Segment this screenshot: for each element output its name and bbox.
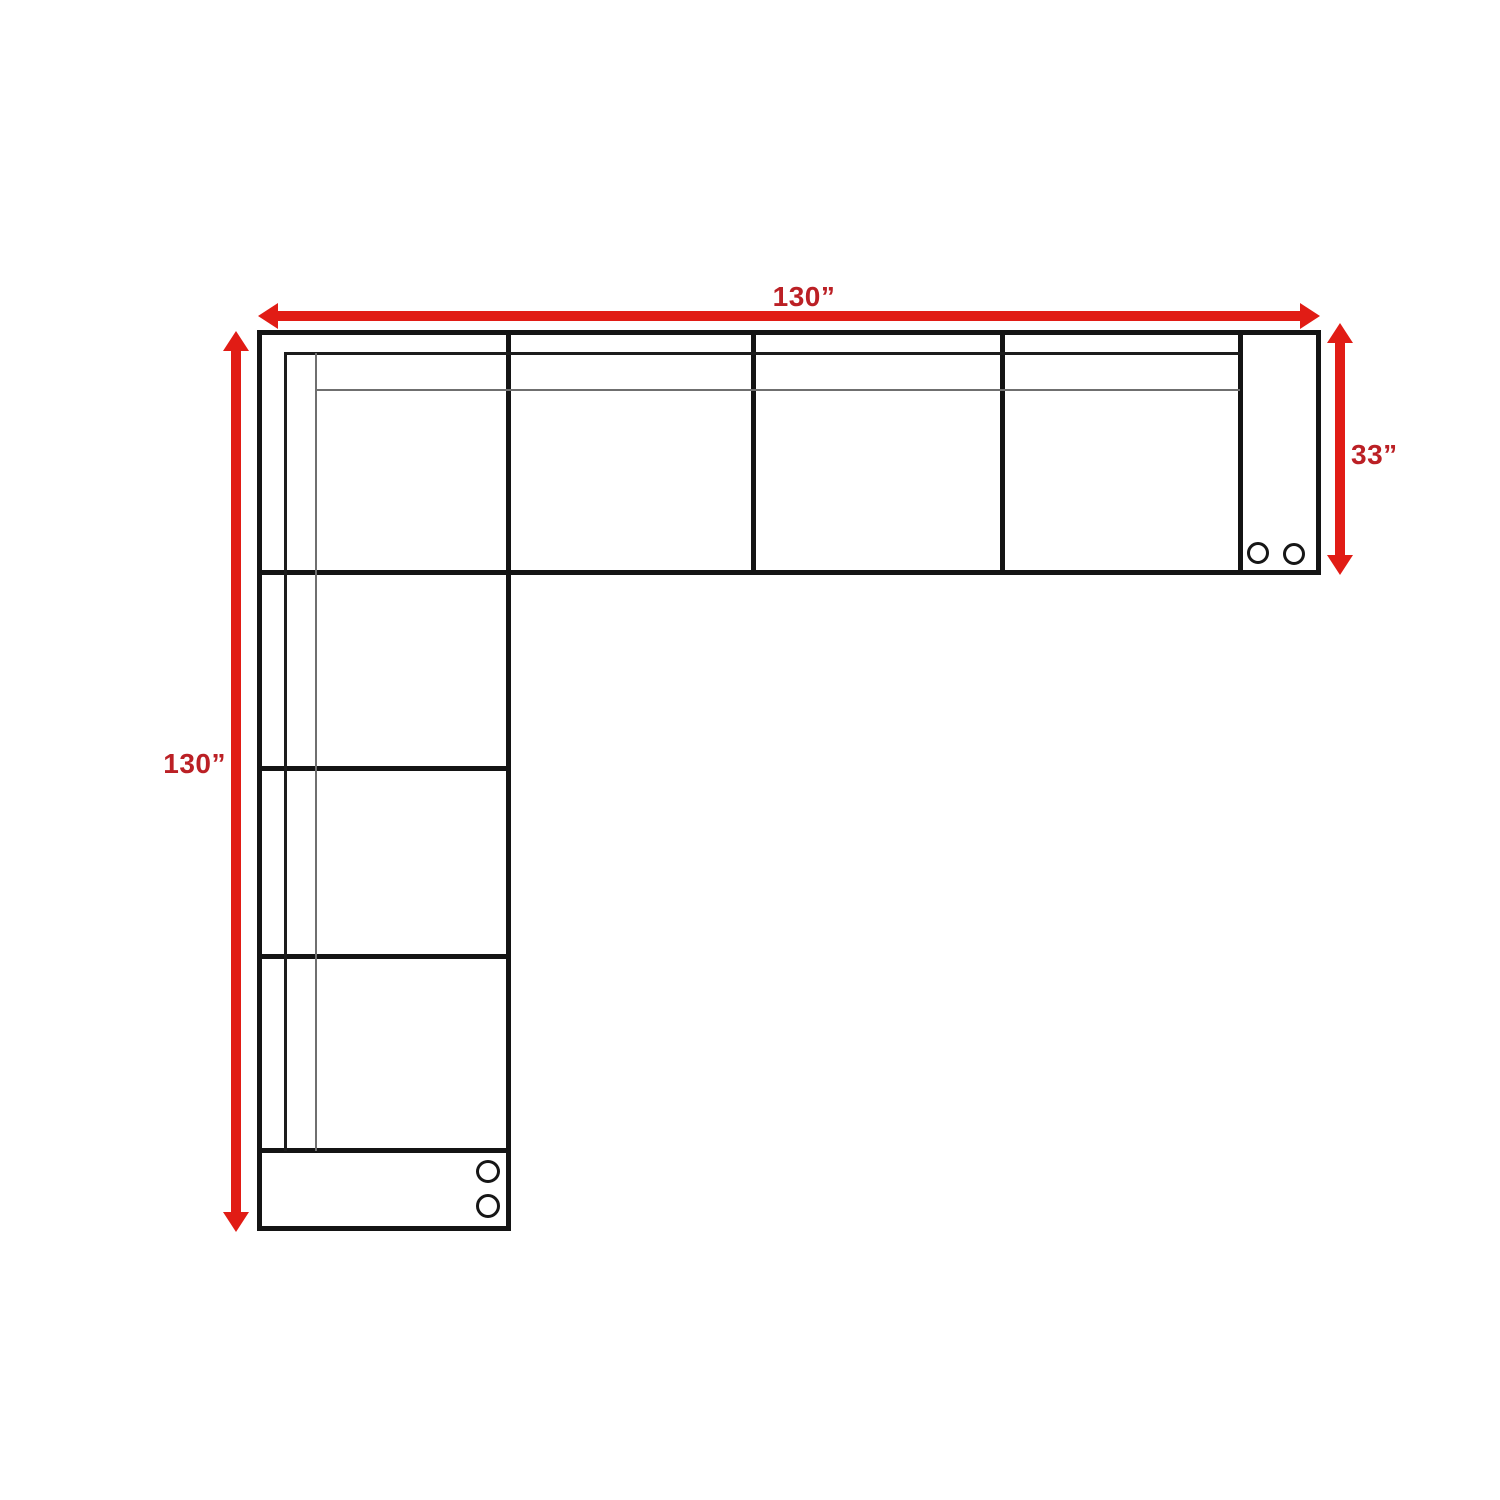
- sofa-outline-left-edge: [257, 330, 262, 1231]
- backrest-inner-line-vertical: [315, 353, 317, 1151]
- arrowhead-right-icon: [1300, 303, 1320, 329]
- armrest-divider-right: [1238, 330, 1243, 575]
- dimension-label-right-depth: 33”: [1351, 440, 1398, 470]
- dimension-label-top-width: 130”: [704, 282, 904, 312]
- cupholder-icon: [1283, 543, 1305, 565]
- backrest-line-horizontal: [284, 352, 1240, 355]
- seat-divider: [259, 954, 511, 959]
- sofa-outline-top-edge: [257, 330, 1321, 335]
- arrowhead-down-icon: [1327, 555, 1353, 575]
- cupholder-icon: [476, 1194, 500, 1218]
- backrest-inner-line-horizontal: [316, 389, 1240, 391]
- seat-divider: [259, 766, 511, 771]
- corner-seat-right-divider: [506, 330, 511, 1231]
- sofa-outline-right-edge: [1316, 330, 1321, 575]
- backrest-line-vertical: [284, 352, 287, 1151]
- arrow-bar: [231, 347, 241, 1216]
- chaise-row-bottom-edge: [257, 570, 1321, 575]
- cupholder-icon: [1247, 542, 1269, 564]
- arrowhead-down-icon: [223, 1212, 249, 1232]
- dimension-arrow-right-depth: [1327, 323, 1353, 575]
- sofa-outline-bottom-edge: [257, 1226, 511, 1231]
- arrow-bar: [274, 311, 1304, 321]
- seat-divider: [1000, 330, 1005, 575]
- cupholder-icon: [476, 1160, 500, 1183]
- armrest-divider-bottom: [259, 1148, 511, 1153]
- seat-divider: [751, 330, 756, 575]
- arrow-bar: [1335, 339, 1345, 559]
- sectional-sofa-dimension-diagram: 130” 130” 33”: [0, 0, 1500, 1500]
- dimension-label-left-height: 130”: [106, 749, 226, 779]
- dimension-arrow-left-height: [223, 331, 249, 1232]
